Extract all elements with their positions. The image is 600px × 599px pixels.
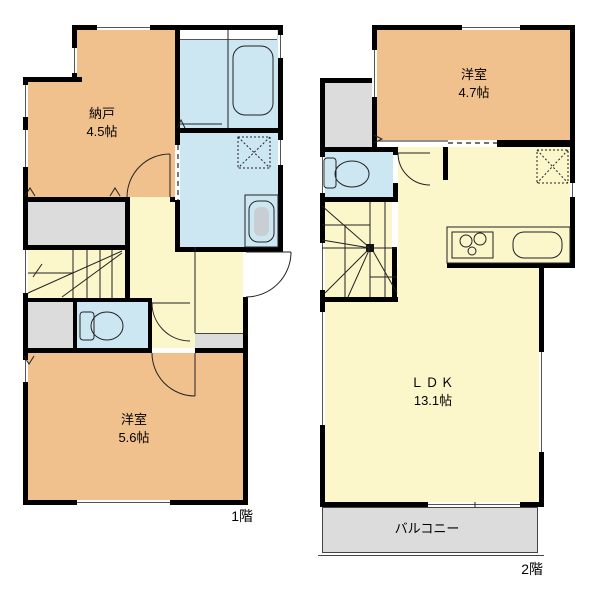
bathtub-icon [233, 46, 273, 115]
room-size: 4.7帖 [424, 84, 524, 102]
room-label-youshitsu-1f: 洋室 5.6帖 [84, 411, 184, 447]
stairs-2f-icon [322, 202, 397, 297]
washing-machine-pan-icon [537, 150, 568, 183]
gas-stove-icon [452, 232, 493, 258]
toilet-icon [80, 312, 94, 340]
room-size: 4.5帖 [52, 123, 152, 141]
gas-stove-icon [474, 233, 486, 245]
opening-tick [374, 135, 382, 143]
washbasin-icon [254, 207, 269, 236]
gas-stove-icon [468, 247, 476, 255]
opening-tick [25, 188, 35, 196]
washing-machine-pan-icon [537, 150, 568, 183]
room-label-nando: 納戸 4.5帖 [52, 105, 152, 141]
toilet-icon [335, 161, 369, 187]
stairs-1f-icon [28, 250, 122, 298]
kitchen-sink-icon [513, 232, 562, 258]
room-label-youshitsu-2f: 洋室 4.7帖 [424, 66, 524, 102]
opening-tick [110, 188, 120, 196]
floor-label-2f: 2階 [493, 559, 543, 579]
door-swing-nando [127, 154, 170, 197]
door-swing-toilet-2f [398, 153, 430, 185]
door-swing-youshitsu-1f [152, 353, 195, 396]
balcony-label: バルコニー [352, 520, 502, 538]
toilet-icon [91, 312, 123, 340]
kitchen-counter [447, 227, 570, 263]
opening-tick [24, 356, 34, 364]
room-name: 納戸 [52, 105, 152, 123]
room-label-ldk: ＬＤＫ 13.1帖 [383, 374, 483, 410]
room-name: 洋室 [424, 66, 524, 84]
room-size: 13.1帖 [383, 392, 483, 410]
toilet-icon [324, 158, 336, 188]
floorplan-canvas: 納戸 4.5帖 洋室 5.6帖 洋室 4.7帖 ＬＤＫ 13.1帖 バルコニー … [0, 0, 600, 599]
door-swing-corridor [152, 303, 190, 341]
floor-label-1f: 1階 [203, 506, 253, 526]
door-swing-entrance [246, 252, 291, 297]
room-size: 5.6帖 [84, 429, 184, 447]
room-name: 洋室 [84, 411, 184, 429]
room-name: ＬＤＫ [383, 374, 483, 392]
washing-machine-pan-icon [537, 150, 568, 183]
gas-stove-icon [460, 235, 472, 247]
